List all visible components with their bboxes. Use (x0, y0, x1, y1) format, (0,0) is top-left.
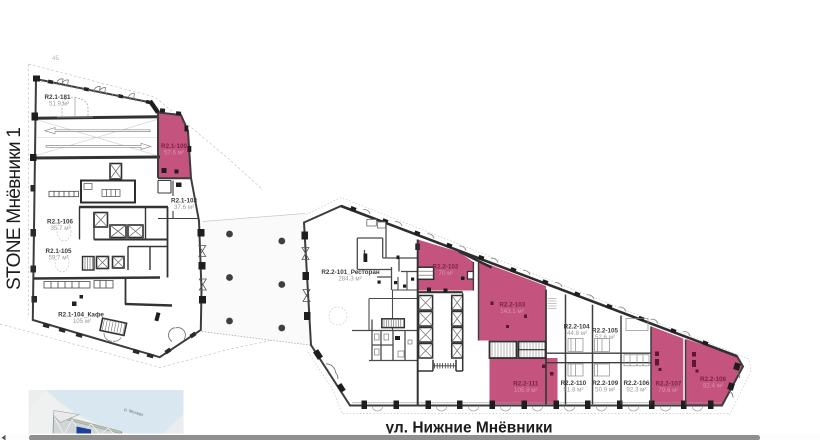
svg-text:35.7 м²: 35.7 м² (50, 225, 70, 232)
svg-text:STONE Мнёвники 1: STONE Мнёвники 1 (4, 128, 25, 290)
svg-text:57.6 м²: 57.6 м² (164, 150, 184, 157)
svg-text:4Б: 4Б (52, 56, 59, 62)
svg-text:105.9 м²: 105.9 м² (514, 387, 538, 394)
svg-text:70 м²: 70 м² (439, 270, 454, 277)
svg-text:37.6 м²: 37.6 м² (174, 204, 194, 211)
svg-text:44.8 м²: 44.8 м² (567, 330, 587, 337)
svg-text:59.7 м²: 59.7 м² (48, 255, 68, 262)
svg-text:51.8 м²: 51.8 м² (563, 387, 583, 394)
svg-text:82.4 м²: 82.4 м² (703, 383, 723, 390)
svg-text:105 м²: 105 м² (73, 318, 91, 325)
svg-text:51.9 м²: 51.9 м² (49, 101, 69, 108)
svg-text:143.1 м²: 143.1 м² (500, 308, 524, 315)
svg-text:52.6 м²: 52.6 м² (595, 334, 615, 341)
svg-text:284.3 м²: 284.3 м² (338, 276, 362, 283)
svg-text:50.9 м²: 50.9 м² (595, 387, 615, 394)
svg-text:79.6 м²: 79.6 м² (658, 387, 678, 394)
svg-text:92.3 м²: 92.3 м² (626, 387, 646, 394)
